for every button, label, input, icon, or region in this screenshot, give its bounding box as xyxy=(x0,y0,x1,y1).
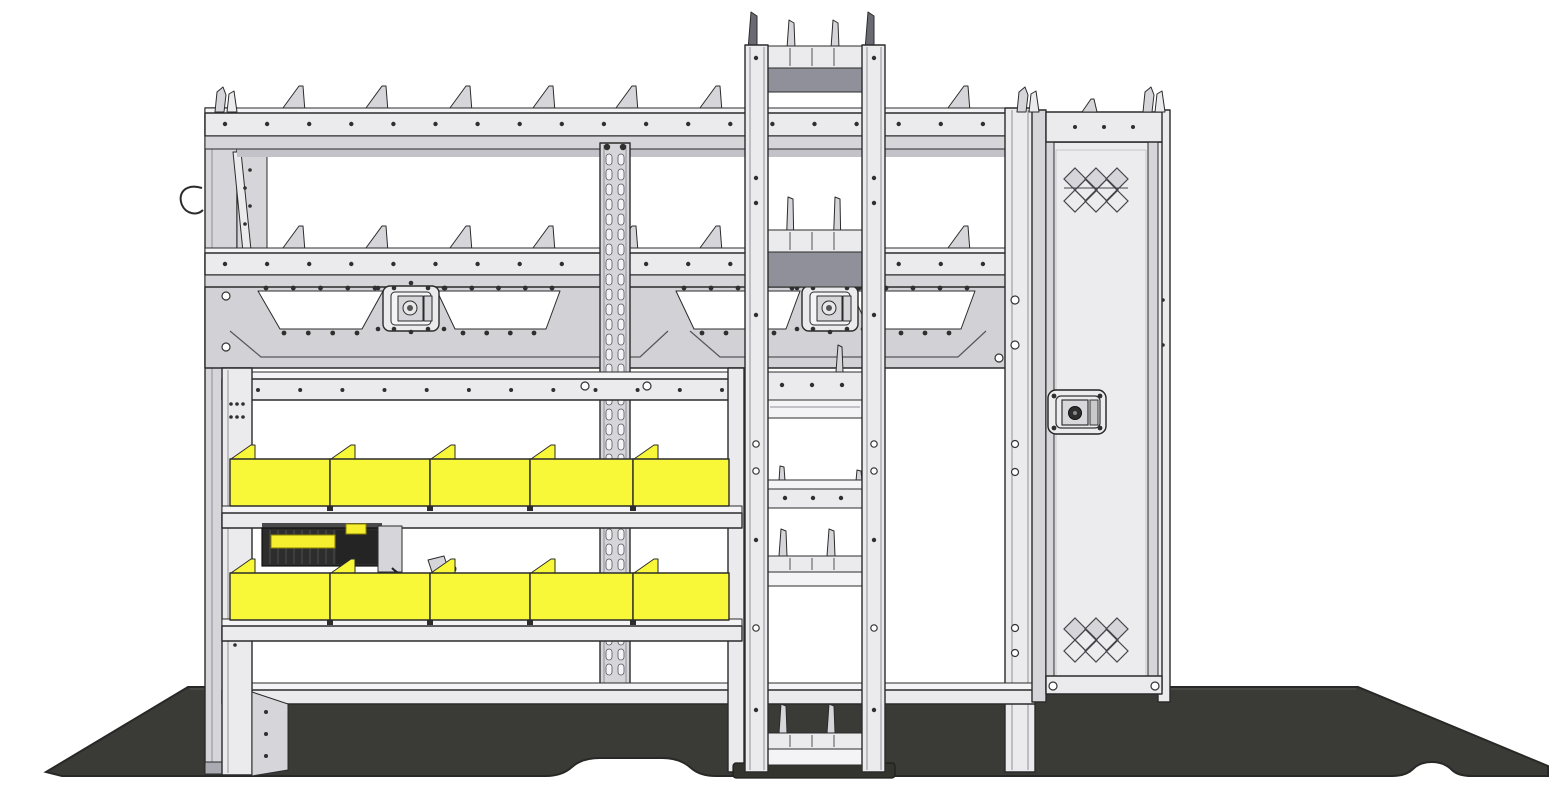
rail-bolt xyxy=(753,468,759,474)
strut-slot xyxy=(606,559,612,570)
tray-fin xyxy=(787,20,795,48)
strut-slot xyxy=(618,304,624,315)
strut-bolt xyxy=(620,144,626,150)
rivet xyxy=(1073,125,1077,129)
rivet xyxy=(233,643,237,647)
rivet xyxy=(256,388,260,392)
rivet xyxy=(433,262,437,266)
charger-side-panel xyxy=(378,526,402,572)
panel-rivet xyxy=(724,331,729,336)
strut-slot xyxy=(618,259,624,270)
strut-slot xyxy=(606,244,612,255)
rivet xyxy=(223,122,227,126)
rivet xyxy=(840,383,844,387)
clamp-prong xyxy=(1029,91,1039,112)
rivet xyxy=(243,186,247,190)
strut-slot xyxy=(606,439,612,450)
rivet xyxy=(475,262,479,266)
rail-bolt xyxy=(753,441,759,447)
rivet xyxy=(307,262,311,266)
shelf-tick xyxy=(527,506,533,511)
charger-accent-tab xyxy=(346,524,366,534)
storage-bin xyxy=(633,573,729,620)
rivet xyxy=(509,388,513,392)
rivet xyxy=(265,122,269,126)
rivet xyxy=(235,402,239,406)
clamp-prong xyxy=(1155,91,1165,112)
ladder-tray xyxy=(768,230,862,252)
panel-rivet xyxy=(355,331,360,336)
rail-bolt xyxy=(871,468,877,474)
panel-rivet xyxy=(484,331,489,336)
upright-bolt xyxy=(1012,469,1019,476)
ladder-tray xyxy=(768,556,862,572)
clamp-prong xyxy=(227,91,237,112)
rivet xyxy=(560,262,564,266)
latch-rivet xyxy=(426,286,431,291)
bin-divider-fin xyxy=(634,445,658,459)
rivet xyxy=(602,122,606,126)
rail-rivet xyxy=(872,176,876,180)
rivet xyxy=(349,122,353,126)
ladder-tray xyxy=(768,733,862,749)
rivet xyxy=(551,388,555,392)
strut-slot xyxy=(618,199,624,210)
strut-slot xyxy=(618,439,624,450)
rivet xyxy=(264,732,268,736)
strut-slot xyxy=(606,304,612,315)
strut-slot xyxy=(618,214,624,225)
storage-bin xyxy=(633,459,729,506)
shelf-tick xyxy=(327,506,333,511)
rivet xyxy=(467,388,471,392)
strut-slot xyxy=(618,544,624,555)
rivet xyxy=(812,122,816,126)
latch-rivet xyxy=(442,286,447,291)
rivet xyxy=(223,262,227,266)
strut-slot xyxy=(606,424,612,435)
ladder-tray-lip xyxy=(768,68,862,92)
rail-rivet xyxy=(754,538,758,542)
strut-slot xyxy=(618,319,624,330)
panel-latch xyxy=(376,281,447,335)
latch-rivet xyxy=(392,327,397,332)
upright-bolt xyxy=(1011,296,1019,304)
rivet xyxy=(770,122,774,126)
rail-rivet xyxy=(872,201,876,205)
strut-slot xyxy=(618,349,624,360)
ladder-tray-lip xyxy=(768,749,862,765)
panel-window xyxy=(258,291,383,329)
front-left-foot xyxy=(252,692,288,776)
strut-slot xyxy=(618,229,624,240)
rivet xyxy=(391,262,395,266)
rivet xyxy=(678,388,682,392)
tray-fin xyxy=(827,704,835,733)
illustration-canvas xyxy=(0,0,1559,802)
tray-fin xyxy=(831,20,839,48)
rivet xyxy=(340,388,344,392)
panel-rivet xyxy=(682,286,687,291)
van-shelving-illustration xyxy=(0,0,1559,802)
tray-fin xyxy=(779,466,785,481)
strut-slot xyxy=(618,649,624,660)
panel-window xyxy=(437,291,560,329)
shelf-tick xyxy=(427,620,433,625)
rivet xyxy=(248,204,252,208)
ladder-tray-lip xyxy=(768,252,862,287)
panel-rivet xyxy=(508,331,513,336)
strut-bolt xyxy=(604,144,610,150)
strut-slot xyxy=(618,424,624,435)
strut-slot xyxy=(618,409,624,420)
front-right-upright xyxy=(728,368,744,772)
panel-rivet xyxy=(911,286,916,291)
upright-bolt xyxy=(1011,341,1019,349)
panel-bolt xyxy=(222,343,230,351)
strut-slot xyxy=(618,244,624,255)
front-rail-edge xyxy=(222,372,742,379)
panel-rivet xyxy=(736,286,741,291)
strut-slot xyxy=(606,349,612,360)
rivet xyxy=(720,388,724,392)
tray-fin xyxy=(779,529,787,556)
storage-bin xyxy=(230,573,330,620)
locker-bottom-rail xyxy=(1046,676,1162,694)
rail-rivet xyxy=(754,176,758,180)
tray-fin xyxy=(827,529,835,556)
storage-bin xyxy=(430,573,530,620)
locker-top-fin xyxy=(1082,99,1097,112)
rivet xyxy=(433,122,437,126)
rivet xyxy=(298,388,302,392)
mounting-clamp xyxy=(1143,87,1165,112)
clamp-prong xyxy=(1143,87,1154,112)
ladder-tray xyxy=(768,46,862,68)
strut-slot xyxy=(618,154,624,165)
panel-rivet xyxy=(496,286,501,291)
right-upright-post xyxy=(1005,108,1035,772)
rail-bolt xyxy=(581,382,589,390)
rivet xyxy=(475,122,479,126)
ladder-rail-left xyxy=(745,45,768,772)
locker-latch-strip xyxy=(1148,142,1158,690)
panel-rivet xyxy=(264,286,269,291)
lock-keyhole xyxy=(1073,411,1077,415)
panel-window xyxy=(676,291,800,329)
rivet xyxy=(780,383,784,387)
strut-slot xyxy=(618,184,624,195)
rail-rivet xyxy=(754,708,758,712)
bin-row-1 xyxy=(230,445,729,511)
strut-slot xyxy=(606,409,612,420)
rivet xyxy=(810,383,814,387)
panel-rivet xyxy=(965,286,970,291)
latch-keyhole xyxy=(407,305,413,311)
panel-bolt xyxy=(222,292,230,300)
strut-slot xyxy=(606,529,612,540)
panel-rivet xyxy=(532,331,537,336)
panel-rivet xyxy=(469,286,474,291)
ladder-tray-lip xyxy=(768,572,862,586)
rivet xyxy=(1131,125,1135,129)
rivet xyxy=(560,122,564,126)
shelf-tick xyxy=(527,620,533,625)
tray-fin xyxy=(779,704,787,733)
rail-rivet xyxy=(754,56,758,60)
storage-bin xyxy=(330,573,430,620)
rivet xyxy=(264,710,268,714)
rivet xyxy=(243,222,247,226)
rivet xyxy=(636,388,640,392)
panel-rivet xyxy=(709,286,714,291)
rivet xyxy=(229,415,233,419)
top-shelf-edge xyxy=(205,108,1037,113)
rivet xyxy=(349,262,353,266)
latch-rivet xyxy=(426,327,431,332)
rivet xyxy=(854,122,858,126)
strut-slot xyxy=(618,274,624,285)
shelf-tick xyxy=(630,506,636,511)
shelf-tick xyxy=(327,620,333,625)
rivet xyxy=(391,122,395,126)
strut-slot xyxy=(606,229,612,240)
rivet xyxy=(783,496,787,500)
rail-rivet xyxy=(872,56,876,60)
bottom-rail-band xyxy=(222,690,1035,704)
rivet xyxy=(235,415,239,419)
strut-slot xyxy=(606,184,612,195)
rail-rivet xyxy=(872,313,876,317)
rivet xyxy=(264,754,268,758)
storage-bin xyxy=(330,459,430,506)
latch-rivet xyxy=(376,286,381,291)
rivet xyxy=(241,402,245,406)
rivet xyxy=(594,388,598,392)
rivet xyxy=(1102,125,1106,129)
shelf-tick xyxy=(427,506,433,511)
rivet xyxy=(383,388,387,392)
latch-rivet xyxy=(409,281,414,286)
locker-cabinet xyxy=(1017,87,1170,702)
clamp-prong xyxy=(1017,87,1028,112)
bin-divider-fin xyxy=(431,445,455,459)
rivet xyxy=(728,262,732,266)
rivet xyxy=(897,122,901,126)
rivet xyxy=(307,122,311,126)
latch-rivet xyxy=(392,286,397,291)
rail-bolt xyxy=(753,625,759,631)
charger-station xyxy=(262,523,456,578)
ladder-tray-lip xyxy=(768,400,862,418)
rivet xyxy=(811,496,815,500)
strut-slot xyxy=(606,334,612,345)
upright-bolt xyxy=(1012,650,1019,657)
rail-rivet xyxy=(872,538,876,542)
latch-rivet xyxy=(442,327,447,332)
panel-rivet xyxy=(345,286,350,291)
locker-lock xyxy=(1048,390,1106,434)
locker-left-frame xyxy=(1032,110,1046,702)
strut-slot xyxy=(606,169,612,180)
rail-bolt xyxy=(871,625,877,631)
panel-rivet xyxy=(291,286,296,291)
panel-latch xyxy=(795,281,866,335)
strut-slot xyxy=(606,649,612,660)
rivet xyxy=(686,262,690,266)
rivet xyxy=(248,168,252,172)
bottom-rail-g xyxy=(222,683,1035,704)
panel-rivet xyxy=(899,331,904,336)
rail-rivet xyxy=(754,201,758,205)
bin-divider-fin xyxy=(331,445,355,459)
rivet xyxy=(425,388,429,392)
panel-rivet xyxy=(923,331,928,336)
locker-top-rail-g xyxy=(1046,112,1162,142)
rivet xyxy=(981,122,985,126)
top-shelf-band xyxy=(205,113,1037,136)
rivet xyxy=(229,402,233,406)
strut-slot xyxy=(606,154,612,165)
upright-bolt xyxy=(1012,441,1019,448)
rail-bolt xyxy=(871,441,877,447)
lock-screw xyxy=(1052,394,1057,399)
bin-shelf-2-band xyxy=(222,626,742,641)
strut-slot xyxy=(606,664,612,675)
rivet xyxy=(518,262,522,266)
rivet xyxy=(839,496,843,500)
rail-rivet xyxy=(754,313,758,317)
rivet xyxy=(265,262,269,266)
strut-slot xyxy=(618,529,624,540)
latch-rivet xyxy=(409,330,414,335)
rivet xyxy=(241,415,245,419)
right-upright xyxy=(1005,108,1035,772)
storage-bin xyxy=(530,573,633,620)
latch-rivet xyxy=(845,327,850,332)
latch-rivet xyxy=(376,327,381,332)
panel-rivet xyxy=(772,331,777,336)
rail-bolt xyxy=(643,382,651,390)
strut-slot xyxy=(606,259,612,270)
panel-rivet xyxy=(306,331,311,336)
wire-hook xyxy=(181,187,203,214)
rivet xyxy=(728,122,732,126)
strut-slot xyxy=(606,289,612,300)
tray-fin xyxy=(856,470,862,481)
rivet xyxy=(644,262,648,266)
lock-screw xyxy=(1052,426,1057,431)
ladder-rail-right xyxy=(862,45,885,772)
latch-rivet xyxy=(811,327,816,332)
latch-rivet xyxy=(795,327,800,332)
bin-divider-fin xyxy=(531,559,555,573)
lock-tab xyxy=(1090,400,1098,425)
bin-divider-fin xyxy=(634,559,658,573)
panel-rivet xyxy=(461,331,466,336)
storage-bin xyxy=(230,459,330,506)
charger-accent-bar xyxy=(271,535,335,548)
bin-divider-fin xyxy=(531,445,555,459)
strut-slot xyxy=(618,169,624,180)
panel-rivet xyxy=(938,286,943,291)
strut-slot xyxy=(606,199,612,210)
rivet xyxy=(686,122,690,126)
bottom-rail-edge xyxy=(222,683,1035,690)
rivet xyxy=(981,262,985,266)
shelf-tick xyxy=(630,620,636,625)
rivet xyxy=(939,122,943,126)
ladder-tray xyxy=(768,480,862,489)
latch-tab xyxy=(424,296,432,321)
rivet xyxy=(939,262,943,266)
latch-keyhole xyxy=(826,305,832,311)
rivet xyxy=(518,122,522,126)
panel-rivet xyxy=(700,331,705,336)
latch-tab xyxy=(843,296,851,321)
rail-rivet xyxy=(872,708,876,712)
strut-slot xyxy=(618,334,624,345)
locker-bolt xyxy=(1049,682,1057,690)
latch-rivet xyxy=(828,330,833,335)
strut-slot xyxy=(618,559,624,570)
panel-rivet xyxy=(947,331,952,336)
panel-rivet xyxy=(550,286,555,291)
panel-rivet xyxy=(523,286,528,291)
panel-rivet xyxy=(330,331,335,336)
panel-rivet xyxy=(282,331,287,336)
strut-slot xyxy=(618,289,624,300)
charger-dark-bay xyxy=(336,530,378,564)
strut-slot xyxy=(606,319,612,330)
strut-slot xyxy=(606,544,612,555)
upright-bolt xyxy=(1012,625,1019,632)
rivet xyxy=(897,262,901,266)
locker-bolt xyxy=(1151,682,1159,690)
strut-slot xyxy=(606,274,612,285)
storage-bin xyxy=(530,459,633,506)
strut-slot xyxy=(606,214,612,225)
rivet xyxy=(644,122,648,126)
clamp-prong xyxy=(215,87,226,112)
bin-row-2 xyxy=(230,559,729,625)
storage-bin xyxy=(430,459,530,506)
panel-rivet xyxy=(318,286,323,291)
bin-shelf-1-edge xyxy=(222,506,742,513)
panel-bolt xyxy=(995,354,1003,362)
strut-slot xyxy=(618,664,624,675)
